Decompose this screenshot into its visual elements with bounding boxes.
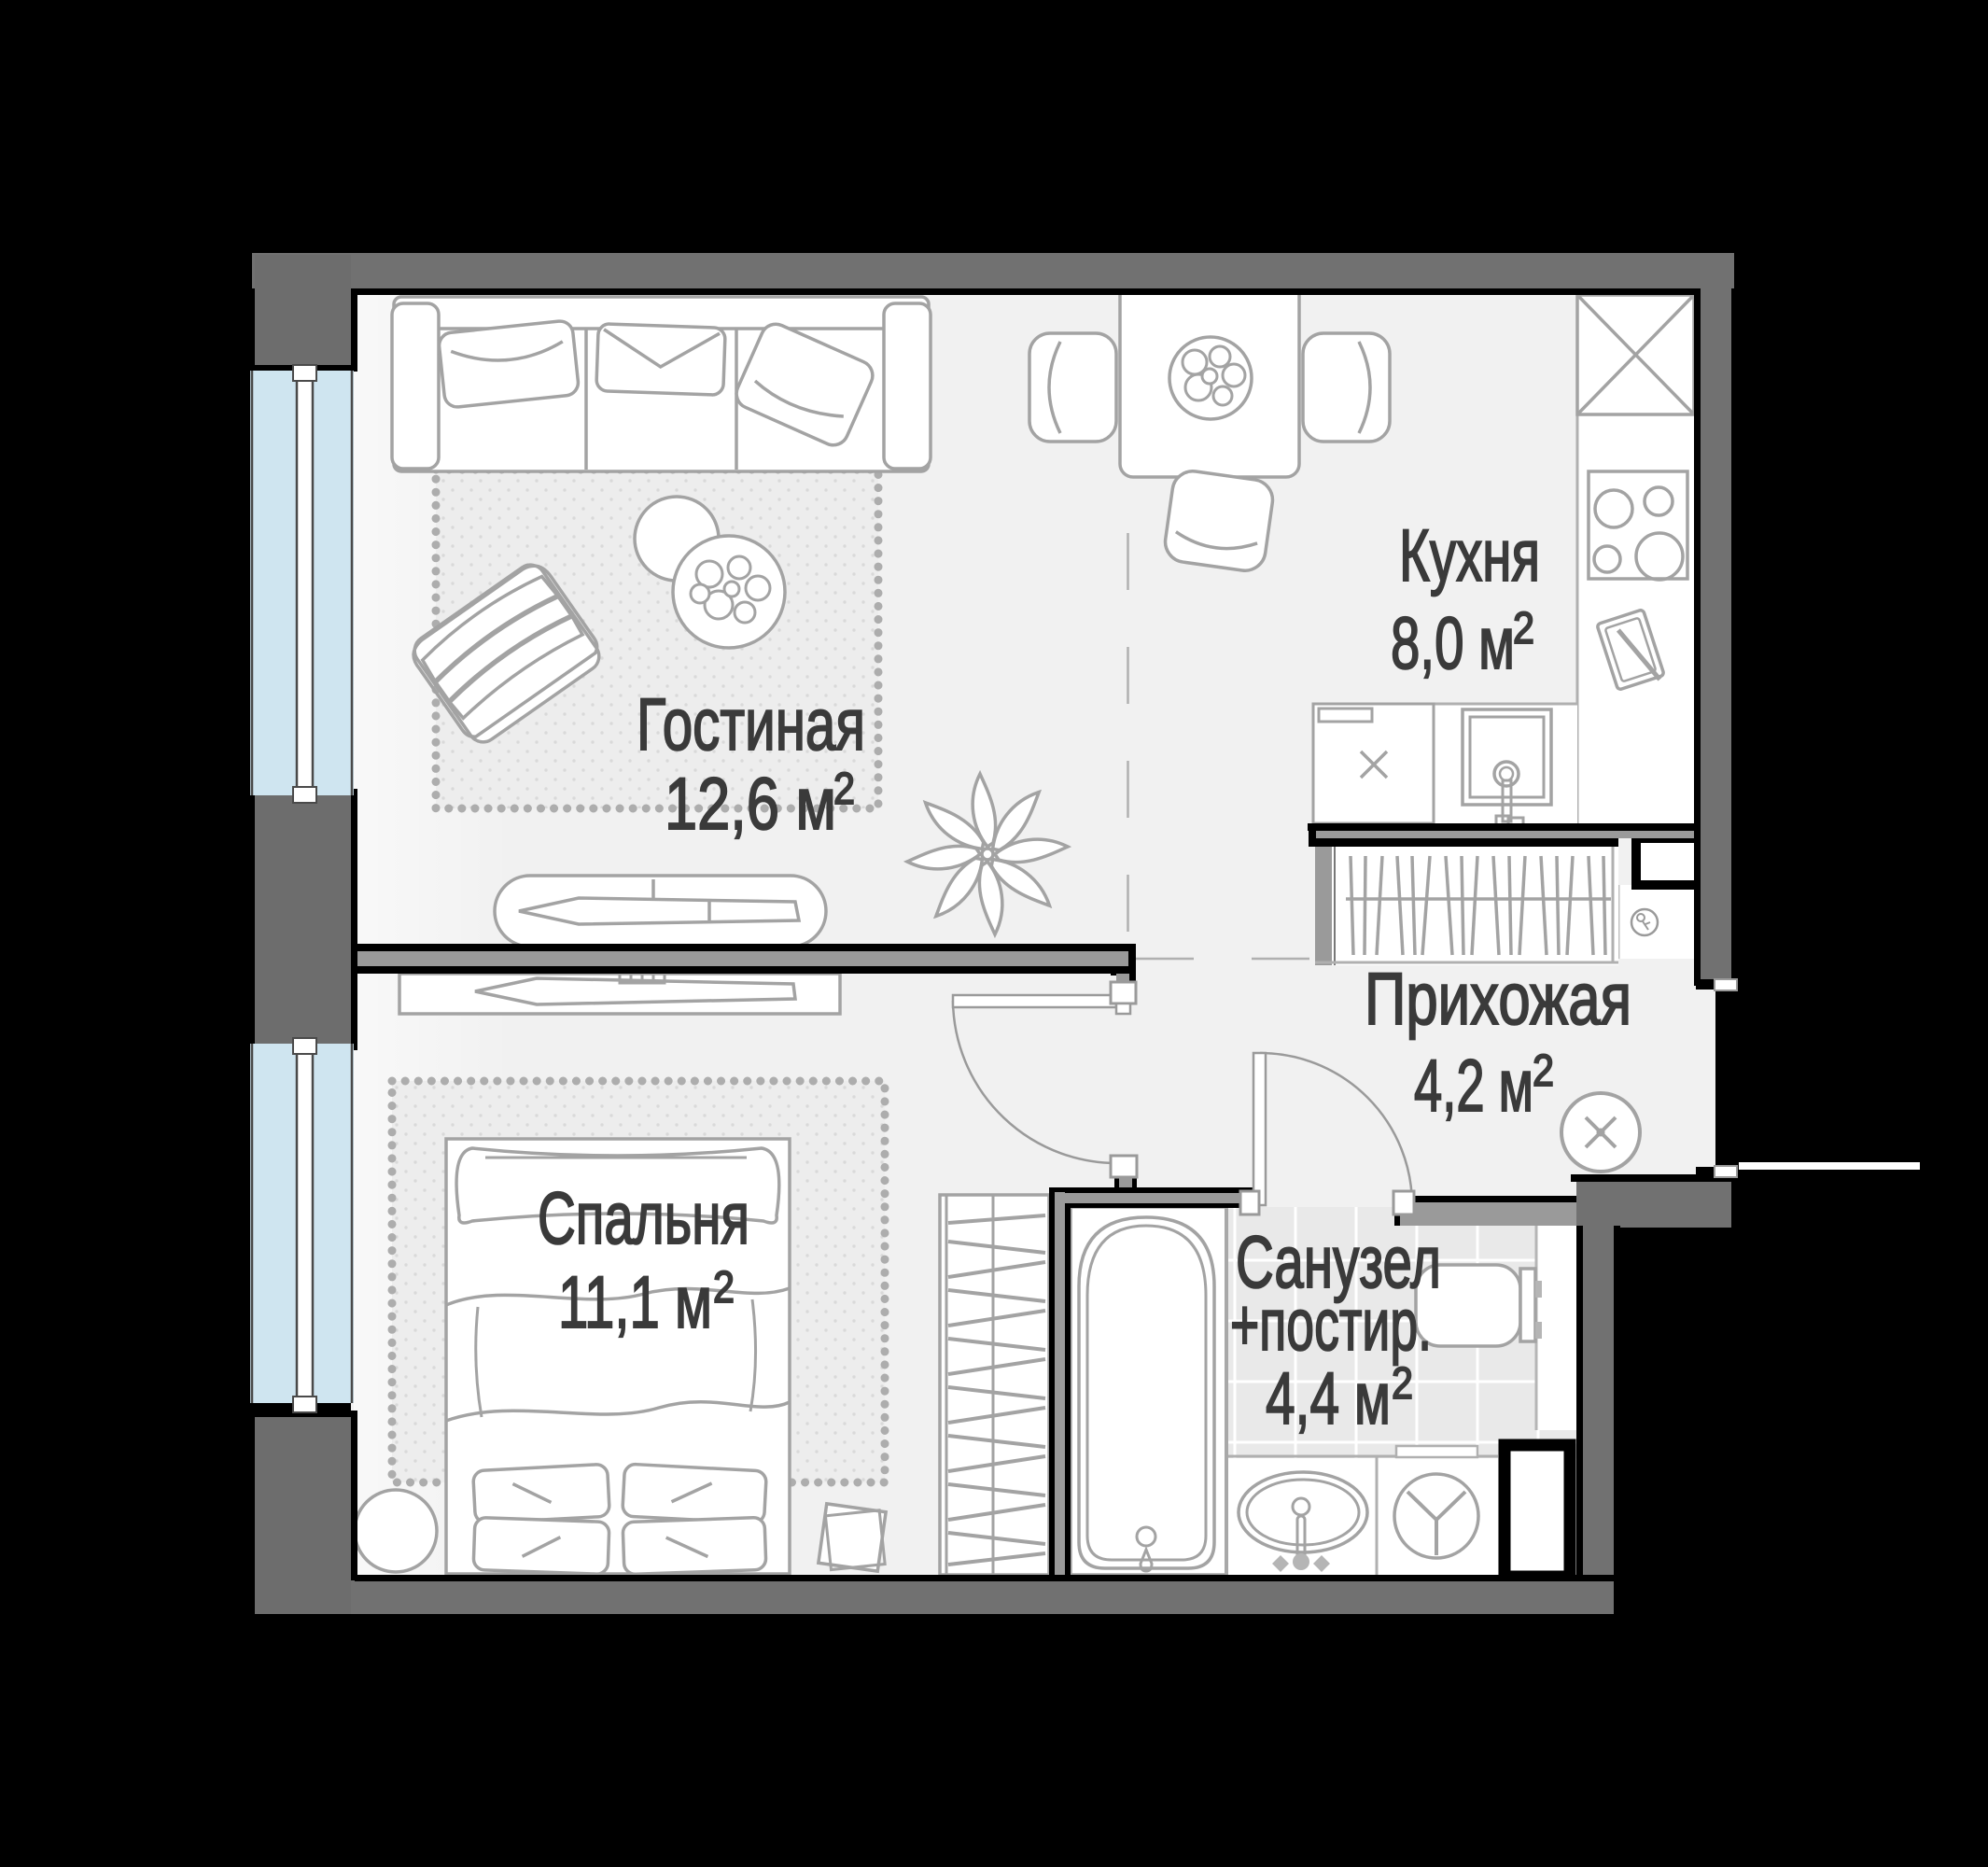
svg-text:2: 2 [833, 765, 855, 814]
svg-text:11,1 м: 11,1 м [558, 1260, 712, 1343]
svg-text:4,2 м: 4,2 м [1414, 1044, 1533, 1127]
svg-text:4,4 м: 4,4 м [1266, 1356, 1391, 1439]
svg-text:Спальня: Спальня [538, 1176, 749, 1259]
svg-text:2: 2 [713, 1263, 735, 1313]
svg-text:+постир.: +постир. [1230, 1283, 1432, 1366]
svg-text:Кухня: Кухня [1399, 513, 1540, 597]
svg-text:8,0 м: 8,0 м [1391, 601, 1515, 684]
svg-text:2: 2 [1513, 604, 1534, 653]
svg-text:Гостиная: Гостиная [637, 682, 865, 765]
svg-text:2: 2 [1533, 1046, 1554, 1096]
svg-text:2: 2 [1392, 1359, 1413, 1409]
svg-text:12,6 м: 12,6 м [665, 762, 836, 845]
svg-text:Прихожая: Прихожая [1365, 957, 1631, 1040]
